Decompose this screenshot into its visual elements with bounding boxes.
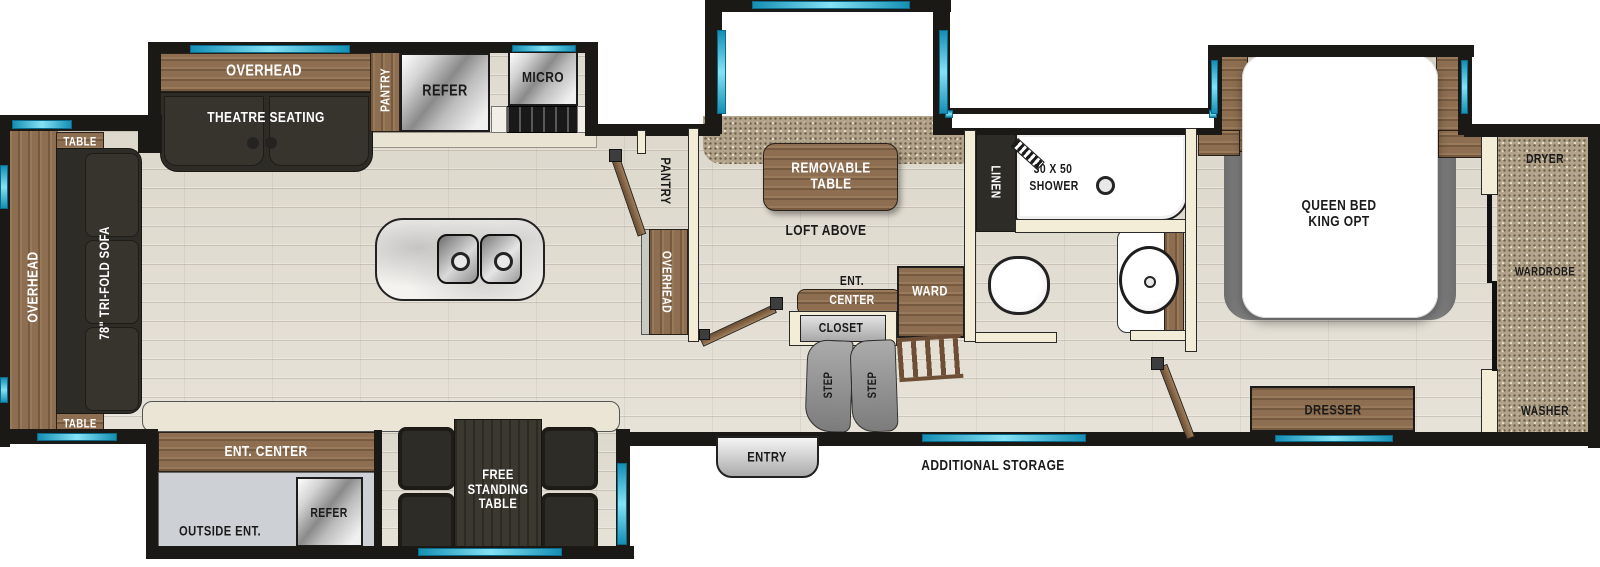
free-standing-table-label: FREE STANDING TABLE xyxy=(466,467,530,511)
dinette-chair-4 xyxy=(541,493,598,553)
loft-above-label: LOFT ABOVE xyxy=(786,223,867,239)
wall-theatre-right xyxy=(585,42,598,136)
shower-label-2: SHOWER xyxy=(1029,179,1078,193)
bed-label-1: QUEEN BED xyxy=(1302,198,1377,214)
step-1-label: STEP xyxy=(822,372,834,399)
table-bottom-label: TABLE xyxy=(63,418,96,431)
linen-label: LINEN xyxy=(990,165,1003,198)
theatre-overhead-label: OVERHEAD xyxy=(226,64,302,81)
closet-label: CLOSET xyxy=(819,321,864,335)
wall-top-c xyxy=(1464,124,1600,137)
loft-ladder xyxy=(897,334,964,382)
wardrobe-slider-top xyxy=(1487,195,1492,283)
sink-drain-left xyxy=(451,252,470,271)
window-left-slide-bottom xyxy=(37,433,117,441)
door-hinge-bedroom xyxy=(1151,357,1164,370)
laundry-carpet xyxy=(1497,128,1591,435)
window-front-upper xyxy=(0,165,8,209)
wall-bottom-slide-left xyxy=(146,429,158,559)
hall-overhead-label: OVERHEAD xyxy=(661,251,674,313)
window-front-lower xyxy=(0,377,8,403)
refer-label: REFER xyxy=(422,84,467,101)
wall-bed-slide-top xyxy=(1208,45,1474,57)
dryer-label: DRYER xyxy=(1526,152,1564,166)
window-left-slide-top xyxy=(12,120,72,129)
wall-right xyxy=(1588,124,1600,448)
bottom-slide-divider xyxy=(374,430,382,548)
bath-wall-left xyxy=(964,130,976,342)
dinette-chair-3 xyxy=(541,427,598,490)
wall-top-a xyxy=(585,124,720,136)
counter-left-of-stove xyxy=(491,106,507,133)
hall-ent-label-1: ENT. xyxy=(840,274,864,288)
dinette-chair-1 xyxy=(398,427,455,490)
kitchen-counter-strip xyxy=(370,132,597,148)
shower-label-1: 30 X 50 xyxy=(1034,162,1073,176)
bed-label-2: KING OPT xyxy=(1308,214,1369,230)
washer-label: WASHER xyxy=(1521,404,1569,418)
shower-ledge xyxy=(1015,219,1188,233)
bath-wall-bottom-right xyxy=(1130,330,1186,341)
hall-pantry-label: PANTRY xyxy=(659,157,673,204)
additional-storage-label: ADDITIONAL STORAGE xyxy=(921,458,1064,474)
wall-top-b-window xyxy=(952,114,1214,128)
theatre-seating xyxy=(160,92,373,172)
door-hinge-hall xyxy=(770,297,783,310)
theatre-seating-label: THEATRE SEATING xyxy=(207,110,325,126)
left-overhead-label: OVERHEAD xyxy=(26,251,41,322)
door-handle-hall xyxy=(699,329,710,340)
removable-table-label: REMOVABLE TABLE xyxy=(787,160,875,192)
window-bottom-slide-bottom xyxy=(418,548,562,556)
hall-ent-label-2: CENTER xyxy=(829,293,874,307)
wall-stub-kitchen xyxy=(637,130,646,154)
window-sofa-slide-top xyxy=(752,1,910,9)
ward-label: WARD xyxy=(912,284,948,299)
window-bed-slide-right xyxy=(1461,60,1468,114)
shower-drain xyxy=(1096,176,1115,195)
window-sofa-slide-right xyxy=(939,30,948,114)
wardrobe-label: WARDROBE xyxy=(1515,266,1575,279)
stove xyxy=(506,106,578,133)
laundry-pillar-top xyxy=(1481,131,1498,195)
outside-ent-label: OUTSIDE ENT. xyxy=(179,524,261,539)
laundry-pillar-bottom xyxy=(1481,369,1498,435)
wardrobe-hall xyxy=(897,266,965,338)
hall-wall xyxy=(688,128,699,342)
dresser-label: DRESSER xyxy=(1305,403,1362,418)
left-sofa-label: 78" TRI-FOLD SOFA xyxy=(97,226,111,340)
bath-wall-right xyxy=(1185,128,1197,352)
outside-refer-label: REFER xyxy=(310,506,347,520)
wardrobe-slider-bottom xyxy=(1492,281,1497,371)
window-micro xyxy=(512,45,576,52)
dinette-chair-2 xyxy=(398,493,455,553)
floorplan: TABLE OVERHEAD 78" TRI-FOLD SOFA TABLE O… xyxy=(0,0,1600,567)
table-top-label: TABLE xyxy=(63,136,96,149)
micro-label: MICRO xyxy=(522,70,564,86)
window-sofa-slide-left xyxy=(717,30,726,114)
queen-bed xyxy=(1242,54,1438,318)
bath-wall-bottom-left xyxy=(975,332,1057,343)
window-bed-slide-left xyxy=(1211,60,1218,114)
tri-fold-sofa-label: TRI-FOLD SOFA xyxy=(783,85,880,101)
window-bottom-center xyxy=(922,434,1086,442)
window-bottom-dresser xyxy=(1275,435,1393,442)
toilet xyxy=(988,256,1050,315)
kitchen-pantry-label: PANTRY xyxy=(379,68,392,112)
step-2-label: STEP xyxy=(866,372,878,399)
wall-theatre-left xyxy=(148,42,161,135)
window-theatre-top xyxy=(190,45,350,53)
sink-drain-right xyxy=(494,252,513,271)
bottom-ent-center-label: ENT. CENTER xyxy=(224,444,307,460)
entry-label: ENTRY xyxy=(747,450,787,465)
bath-sink-drain xyxy=(1144,276,1156,288)
window-bottom-slide-right xyxy=(617,463,627,545)
door-hinge-kitchen xyxy=(609,149,622,162)
